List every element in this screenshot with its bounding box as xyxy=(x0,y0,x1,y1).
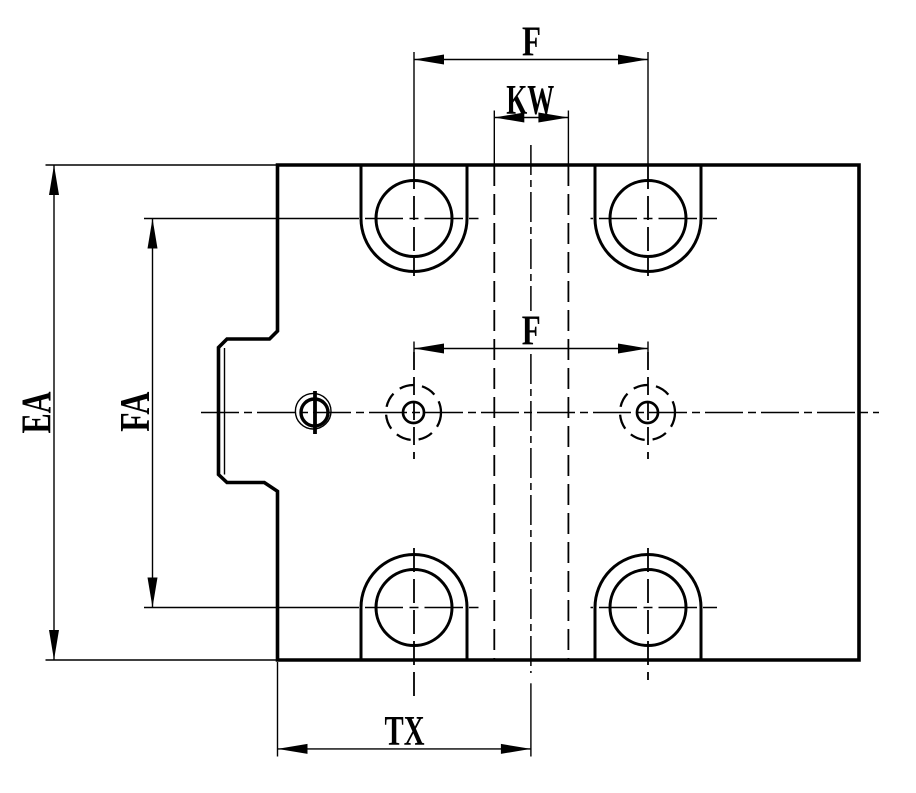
svg-text:F: F xyxy=(522,308,541,355)
svg-text:EA: EA xyxy=(14,391,61,433)
svg-text:F: F xyxy=(522,19,541,66)
svg-text:TX: TX xyxy=(385,708,425,755)
svg-text:FA: FA xyxy=(112,391,159,431)
svg-text:KW: KW xyxy=(506,77,554,124)
